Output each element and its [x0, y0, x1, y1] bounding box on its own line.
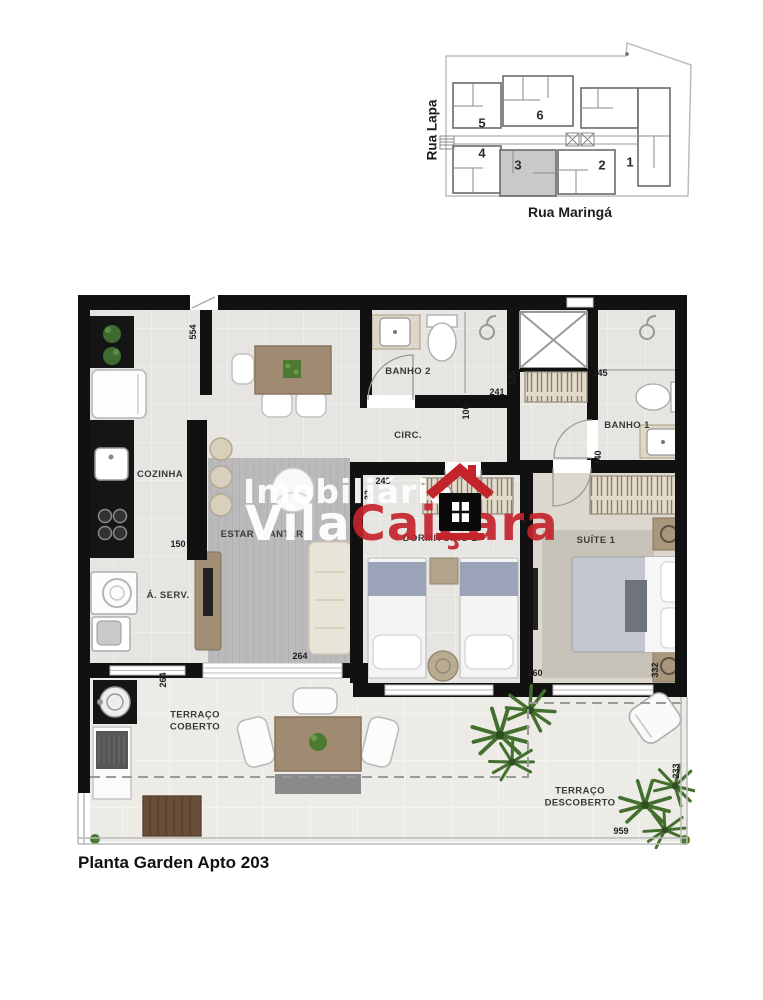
- unit-number-4: 4: [478, 146, 485, 161]
- room-label-cozinha: COZINHA: [137, 469, 183, 481]
- dim-banho1-depth: 240: [593, 450, 603, 465]
- shaft-and-closet: [520, 312, 587, 402]
- dim-circ-width: 100: [461, 404, 471, 419]
- living-room-furniture: [195, 458, 351, 670]
- dim-banho2-width: 241: [489, 387, 504, 397]
- street-label-rua-maringa: Rua Maringá: [528, 204, 612, 220]
- room-label-dormitorio1: DORMITÓRIO 1: [403, 533, 477, 545]
- unit-number-1: 1: [626, 155, 633, 170]
- room-label-banho1: BANHO 1: [604, 420, 650, 432]
- dim-cozinha-depth: 554: [188, 324, 198, 339]
- terraco-coberto-line2: COBERTO: [170, 722, 220, 733]
- dim-dorm-wall: 32: [363, 490, 373, 500]
- unit-number-3: 3: [514, 158, 521, 173]
- room-label-area-servico: Á. SERV.: [147, 590, 190, 602]
- terraco-descoberto-line1: TERRAÇO: [555, 786, 605, 797]
- room-label-terraco-descoberto: TERRAÇO DESCOBERTO: [545, 786, 616, 811]
- site-key-plan: Rua Lapa Rua Maringá 1 2 3 4 5 6: [428, 38, 708, 233]
- room-label-circ: CIRC.: [394, 430, 422, 442]
- dim-cozinha-pass: 150: [170, 539, 185, 549]
- room-label-banho2: BANHO 2: [385, 366, 431, 378]
- unit-number-2: 2: [598, 158, 605, 173]
- dim-suite-depth: 332: [650, 662, 660, 677]
- terraco-descoberto-line2: DESCOBERTO: [545, 798, 616, 809]
- unit-number-5: 5: [478, 116, 485, 131]
- dim-banho1-width: 145: [592, 368, 607, 378]
- dim-dorm-width: 243: [375, 476, 390, 486]
- room-label-terraco-coberto: TERRAÇO COBERTO: [170, 710, 220, 735]
- apartment-floor-plan: COZINHA Á. SERV. ESTAR / JANTAR BANHO 2 …: [75, 290, 695, 855]
- dim-terraco-width: 959: [613, 826, 628, 836]
- dim-suite-width: 260: [527, 668, 542, 678]
- street-label-rua-lapa: Rua Lapa: [425, 100, 440, 161]
- terraco-coberto-line1: TERRAÇO: [170, 710, 220, 721]
- floor-plan-page: Rua Lapa Rua Maringá 1 2 3 4 5 6: [0, 0, 763, 1000]
- dim-banho2-side: 126: [507, 370, 517, 385]
- plan-caption: Planta Garden Apto 203: [78, 853, 269, 873]
- dim-servico-depth: 264: [158, 672, 168, 687]
- room-label-estar-jantar: ESTAR / JANTAR: [221, 529, 304, 541]
- unit-number-6: 6: [536, 108, 543, 123]
- dim-terraco-depth: 233: [671, 763, 681, 778]
- room-label-suite1: SUÍTE 1: [577, 535, 616, 547]
- dim-estar-width: 264: [292, 651, 307, 661]
- laundry-fixtures: [91, 572, 137, 651]
